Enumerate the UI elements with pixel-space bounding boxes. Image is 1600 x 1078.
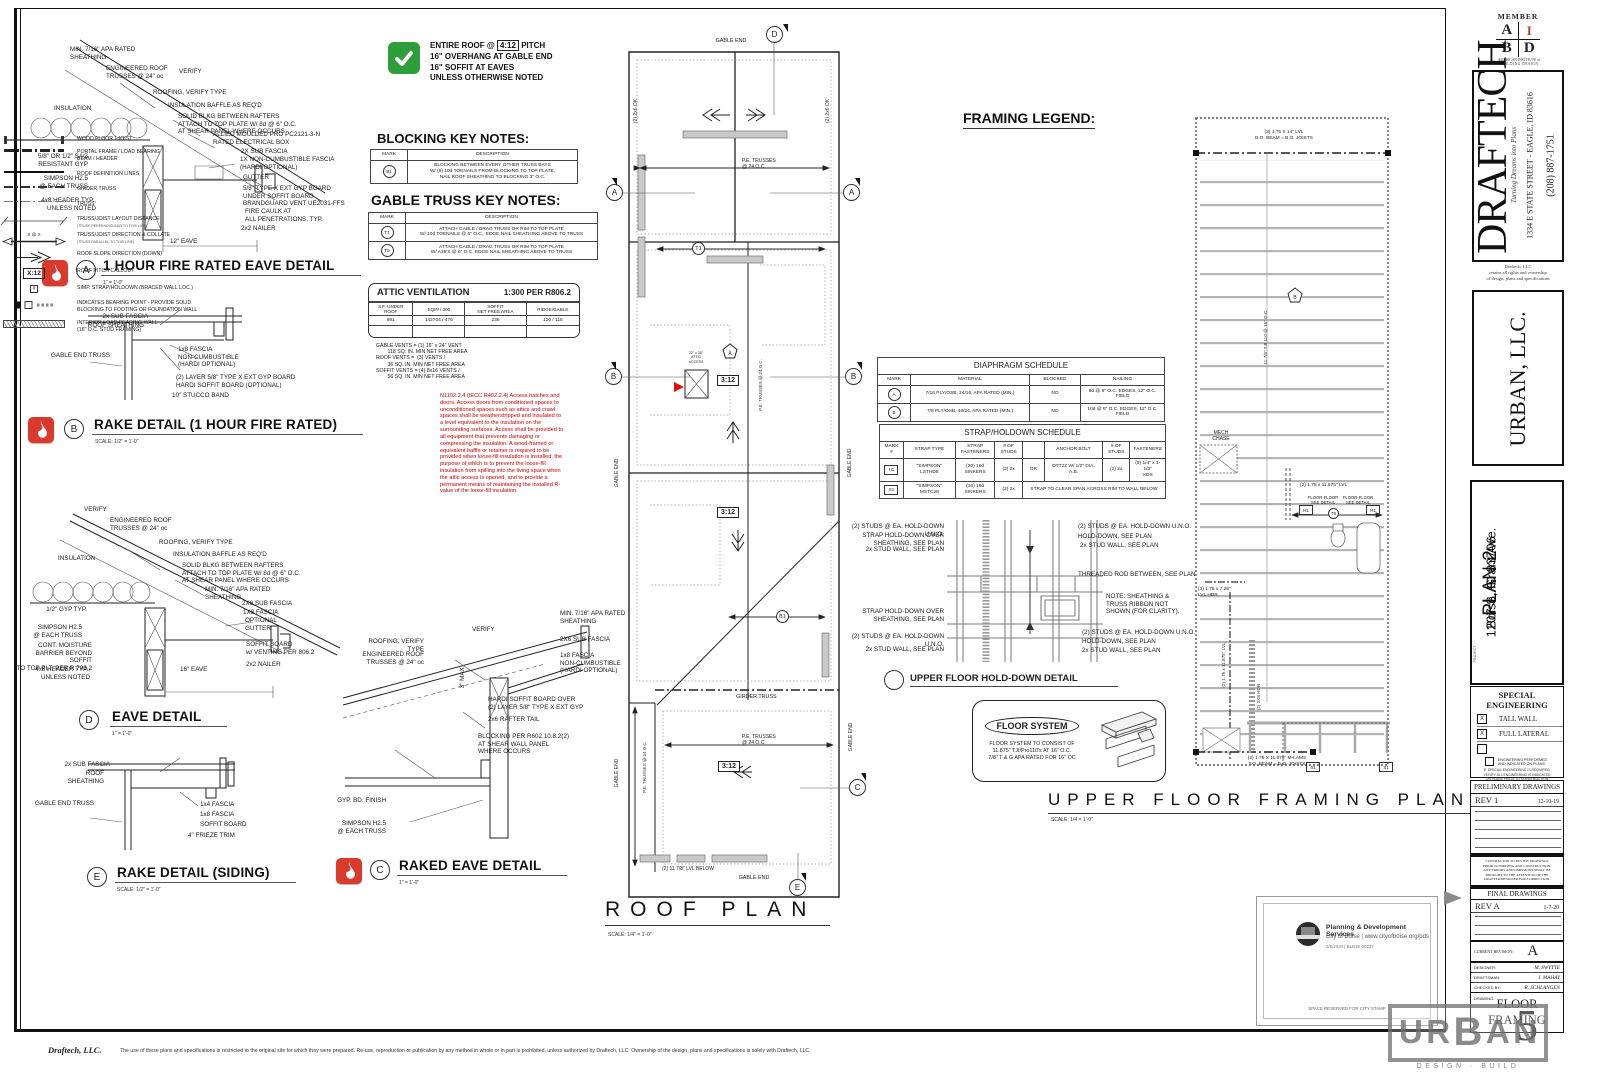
bearing-wall-symbol-icon — [0, 320, 68, 328]
legend-label: WOOD FLOOR I-JOIST — [77, 136, 132, 143]
legend-sublabel: (TRUSS PERPENDICULAR TO THIS LINE) — [77, 224, 147, 228]
table-title: DIAPHRAGM SCHEDULE — [878, 358, 1165, 375]
col-header: SOFFIT NET FREE AREA — [465, 303, 526, 316]
detail-d-label: SOFFIT BOARD w/ VENTING PER 806.2 — [246, 641, 314, 656]
cell: "SIMPSON" LSTHD8 — [903, 458, 955, 481]
roof-pitch-value: 4:12 — [497, 40, 519, 51]
gable-end-label: GABLE END — [614, 458, 620, 487]
contractor-note-box: CONTRACTOR TO REVIEW DRAWINGS PRIOR TO B… — [1470, 854, 1564, 888]
legend-label-text: TRUSS/JOIST LAYOUT DISTANCE — [77, 216, 160, 222]
section-flag-icon — [611, 362, 616, 370]
detail-d-label: ROOFING, VERIFY TYPE — [159, 539, 233, 547]
cell: DTT2Z W/ 1/2" DIA. A.B. — [1044, 458, 1102, 481]
diaphragm-mark: B — [888, 406, 901, 419]
cell: 236 — [465, 316, 526, 326]
legend-item: ROOF DEFINITION LINES — [0, 171, 139, 178]
legend-label: INDICATES BEARING POINT - PROVIDE SOLID … — [77, 300, 197, 313]
floor-floor-label: FLOOR-FLOOR SEE DETAIL — [1340, 495, 1376, 505]
stamp-line2: City of Boise | www.cityofboise.org/pds — [1326, 934, 1429, 940]
section-flag-icon — [612, 178, 617, 186]
section-flag-icon — [861, 773, 866, 781]
tall-wall-checkbox[interactable]: X — [1477, 714, 1487, 724]
gable-truss-key-notes-table: MARKDESCRIPTION T1ATTACH GABLE / DRAG TR… — [368, 212, 598, 260]
attic-access-label: 22" x 30" ATTIC ACCESS — [683, 351, 709, 364]
detail-b-title: RAKE DETAIL (1 HOUR FIRE RATED) — [92, 417, 363, 435]
detail-c-label: BLOCKING PER R602.10.8.2(2) AT SHEAR WAL… — [478, 733, 569, 756]
prelim-rev: REV 1 — [1475, 795, 1498, 805]
legend-label: TRUSS/JOIST DIRECTION & COLLATE(TRUSS PA… — [77, 232, 170, 245]
frame-bottom — [14, 1029, 1446, 1032]
detail-b-label: 10" STUCCO BAND — [172, 392, 229, 400]
legend-label: TRUSS/JOIST LAYOUT DISTANCE(TRUSS PERPEN… — [77, 216, 160, 229]
col-header: # OF STUDS — [1102, 442, 1130, 459]
footer-disclaimer: The use of these plans and specification… — [120, 1048, 800, 1054]
detail-a-label: 2x2 NAILER — [241, 225, 276, 233]
legend-label: PORTAL FRAME / LOAD BEARING BEAM / HEADE… — [77, 149, 160, 162]
detail-e-title: RAKE DETAIL (SIDING) — [115, 865, 296, 883]
final-drawings-box: FINAL DRAWINGS REV A 1-7-20 — [1470, 888, 1564, 941]
prelim-date: 12-10-19 — [1538, 799, 1559, 805]
cell: (8) 1/4" x 1-1/2" SDS — [1130, 458, 1166, 481]
legend-label: GIRDER TRUSS — [77, 186, 116, 193]
pitch-callout-symbol-icon: X:12 — [0, 268, 68, 279]
pe-trusses-label: P.E. TRUSSES @ 24 O.C. — [642, 741, 647, 793]
col-header: MARK — [371, 150, 408, 161]
engineering-performed-checkbox[interactable] — [1485, 757, 1494, 766]
roof-note-pre: ENTIRE ROOF @ — [430, 41, 495, 50]
hdr-2x8-label: (2) 2X8 HDR — [1256, 683, 1261, 710]
legend-item: ROOF SLOPE DIRECTION (DOWN) — [0, 251, 162, 264]
truss-key-t1: T1 — [692, 242, 705, 255]
detail-a-label: 12" EAVE — [170, 238, 197, 246]
legend-label-text: TRUSS/JOIST DIRECTION & COLLATE — [77, 232, 170, 238]
attic-access-pointer-icon — [674, 382, 684, 392]
legend-label: SIMP. STRAP/HOLDOWN (BRACED WALL LOC.) — [77, 285, 193, 292]
col-header: BLOCKED — [1030, 375, 1081, 386]
pe-trusses-label: P.E. TRUSSES @ 24 O.C. — [742, 734, 776, 746]
upper-plan-title: UPPER FLOOR FRAMING PLAN — [1048, 790, 1478, 814]
holddown-label: THREADED ROD BETWEEN, SEE PLAN — [1078, 571, 1196, 579]
detail-b-label: (2) LAYER 5/8" TYPE X EXT GYP BOARD HARD… — [176, 374, 295, 389]
blocking-notes-title: BLOCKING KEY NOTES: — [377, 131, 529, 146]
special-engineering-title: SPECIAL ENGINEERING — [1471, 690, 1563, 710]
holddown-detail-mark — [884, 670, 904, 690]
detail-d-label: OPTIONAL GUTTER — [245, 617, 277, 632]
attic-ventilation-table: ATTIC VENTILATION 1:300 PER R806.2 S.F. … — [368, 283, 580, 338]
urban-letter: B — [1454, 1008, 1483, 1056]
frame-top — [14, 8, 1446, 9]
detail-d-label: 2X6 SUB FASCIA — [242, 600, 292, 608]
strap-holdown-symbol-icon: # — [0, 285, 68, 293]
gable-end-label: GABLE END — [848, 722, 854, 751]
truss-key-t5: T5 — [1328, 508, 1339, 519]
slope-direction-symbol-icon — [0, 251, 68, 264]
key-mark: T1 — [381, 226, 394, 239]
detail-a-label: 2X SUB FASCIA — [241, 148, 288, 156]
cell: 991 — [369, 316, 413, 326]
final-title: FINAL DRAWINGS — [1471, 890, 1563, 900]
floor-system-body: FLOOR SYSTEM TO CONSIST OF 11.875" TJI/P… — [979, 741, 1085, 762]
detail-d-label: 4x8 HEADER TYP., UNLESS NOTED — [22, 666, 90, 681]
detail-c-scale: 1" = 1'-0" — [399, 880, 419, 886]
col-header: NAILING — [1081, 375, 1165, 386]
detail-c-label: SIMPSON H2.5 @ EACH TRUSS — [330, 820, 386, 835]
stamp-line3: 3/5/2020 | BLD20-00237 — [1326, 944, 1374, 949]
truss-symbol-icon — [0, 201, 68, 202]
floor-system-box: FLOOR SYSTEM FLOOR SYSTEM TO CONSIST OF … — [972, 700, 1166, 782]
rights-note: Draftech, LLC retains all rights and own… — [1472, 264, 1564, 282]
section-marker-b: B — [845, 368, 862, 385]
legend-item: INDICATES BEARING POINT - PROVIDE SOLID … — [0, 300, 197, 313]
urban-letter: N — [1513, 1008, 1537, 1056]
preliminary-title: PRELIMINARY DRAWINGS — [1471, 783, 1563, 794]
final-rev: REV A — [1475, 901, 1500, 911]
col-header: MATERIAL — [911, 375, 1030, 386]
holddown-label: 2x STUD WALL, SEE PLAN — [1080, 542, 1159, 550]
checked-by-value: R. SCHLANGEN — [1525, 985, 1560, 991]
detail-e-mark: E — [87, 867, 107, 887]
full-lateral-label: FULL LATERAL — [1499, 730, 1549, 738]
ok-label: (2) 2x6 OK — [825, 98, 831, 123]
aibd-letter-i: I — [1519, 22, 1541, 39]
detail-d-scale: 1" = 1'-0" — [112, 731, 132, 737]
draftech-address: 1334 E STATE STREET - EAGLE, ID 83616 — [1526, 86, 1535, 246]
detail-d-label: 1X8 FASCIA — [243, 609, 278, 617]
gable-end-label: GABLE END — [847, 448, 853, 477]
col-header: STRAP TYPE — [903, 442, 955, 459]
boise-logo-icon — [1296, 922, 1320, 946]
full-lateral-checkbox[interactable]: X — [1477, 729, 1487, 739]
strap-s1-mark: S1 — [1306, 762, 1320, 772]
roof-plan-scale: SCALE: 1/4" = 1'-0" — [608, 932, 652, 938]
section-marker-d: D — [766, 26, 783, 43]
detail-d-mark: D — [79, 710, 99, 730]
draftech-phone: (208) 887-1751 — [1546, 118, 1557, 214]
col-header: DESCRIPTION — [408, 150, 578, 161]
gable-end-label: GABLE END — [726, 875, 782, 881]
portal-frame-symbol-icon — [0, 149, 68, 152]
section-marker-e: E — [789, 879, 806, 896]
holddown-label: HOLD-DOWN, SEE PLAN — [1082, 638, 1156, 646]
detail-b-label: GABLE END TRUSS — [40, 352, 110, 360]
section-marker-a: A — [606, 184, 623, 201]
detail-c-label: HARDI SOFFIT BOARD OVER (2) LAYER 5/8" T… — [488, 696, 583, 711]
gable-notes-title: GABLE TRUSS KEY NOTES: — [371, 192, 561, 208]
ijoist-symbol-icon — [0, 136, 68, 144]
detail-d-label: 2x2 NAILER — [246, 661, 281, 669]
framing-legend-title: FRAMING LEGEND: — [963, 110, 1095, 129]
gable-end-label: GABLE END — [614, 758, 620, 787]
attic-vent-title: ATTIC VENTILATION — [377, 287, 470, 298]
cell: NO — [1030, 403, 1081, 421]
col-header: SQIN / 300 — [413, 303, 465, 316]
legend-item: X @ X TRUSS/JOIST DIRECTION & COLLATE(TR… — [0, 232, 170, 246]
aibd-letter-a: A — [1496, 22, 1519, 39]
layout-distance-symbol-icon — [0, 216, 68, 226]
col-header: DESCRIPTION — [406, 213, 598, 224]
table-title: STRAP/HOLDOWN SCHEDULE — [880, 425, 1166, 442]
detail-a-label: 5/8" TYPE X EXT GYP BOARD UNDER SOFFIT B… — [243, 185, 345, 208]
legend-item: GIRDER TRUSS — [0, 186, 116, 193]
collate-symbol-icon: X @ X — [0, 232, 68, 246]
detail-b-mark: B — [64, 419, 84, 439]
girder-truss-symbol-icon — [0, 186, 68, 188]
draftsman-label: DRAFTSMAN: — [1474, 975, 1500, 980]
section-flag-icon — [857, 362, 862, 370]
detail-a-label: INSULATION — [54, 105, 91, 113]
col-header — [1022, 442, 1044, 459]
girder-truss-label: GIRDER TRUSS — [736, 694, 777, 700]
legend-item: PORTAL FRAME / LOAD BEARING BEAM / HEADE… — [0, 149, 160, 162]
aibd-letter-d: D — [1519, 40, 1541, 57]
fire-rating-icon — [336, 858, 362, 884]
holddown-detail-title: UPPER FLOOR HOLD-DOWN DETAIL — [910, 673, 1118, 687]
strap-s1-mark: S1 — [1379, 762, 1393, 772]
col-header: FASTENERS — [1130, 442, 1166, 459]
diaphragm-mark: A — [888, 388, 901, 401]
drawing-label: DRAWING: — [1474, 996, 1494, 1001]
floor-floor-label: FLOOR-FLOOR SEE DETAIL — [1305, 495, 1341, 505]
detail-b-label: 1x8 FASCIA NON-CUMBUSTIBLE (HARDI OPTION… — [178, 346, 239, 369]
lvl-mid-label: (2) 1.75 x 11.875" LVL — [1300, 483, 1347, 489]
cell: (16) 16d SINKERS — [955, 481, 995, 498]
rotated-plan-labels: GABLE END GABLE END GABLE END GABLE END … — [614, 98, 854, 793]
col-header: MARK — [369, 213, 406, 224]
detail-c-label: 2x6 RAFTER TAIL — [488, 716, 540, 724]
current-revision-label: CURRENT REVISION: — [1474, 949, 1513, 954]
holddown-label: (2) STUDS @ EA. HOLD-DOWN U.N.O. — [1078, 523, 1191, 531]
urban-logo: U R B A N — [1388, 1004, 1548, 1062]
detail-e-label: ROOF SHEATHING — [52, 770, 104, 785]
detail-c-title: RAKED EAVE DETAIL — [397, 858, 567, 876]
cell: 10d @ 6" O.C. EDGES, 12" O.C. FIELD — [1081, 403, 1165, 421]
legend-item: INTERIOR LOAD BEARING WALL (16" O.C. STU… — [0, 320, 158, 333]
holdown-h1-mark: H1 — [1299, 505, 1313, 515]
fire-rating-icon — [28, 417, 54, 443]
cell: (2) 2x — [995, 481, 1022, 498]
detail-d-label: VERIFY — [84, 506, 107, 514]
pitch-symbol-text: X:12 — [23, 268, 45, 279]
footer-firm: Draftech, LLC. — [48, 1045, 102, 1055]
lvl-below-label: (2) 11 7/8" LVL BELOW — [662, 866, 714, 872]
cell: STRAP TO CLEAR SPAN ACROSS RIM TO WALL B… — [1022, 481, 1165, 498]
section-flag-icon — [783, 24, 788, 32]
urban-letter: R — [1426, 1008, 1450, 1056]
detail-d-label: ENGINEERED ROOF TRUSSES @ 24" oc — [110, 517, 172, 532]
detail-a-label: MIN. 7/16" APA RATED SHEATHING — [70, 46, 135, 61]
legend-item: TRUSS — [0, 201, 95, 208]
member-label: MEMBER — [1472, 12, 1564, 21]
detail-c-label: ENGINEERED ROOF TRUSSES @ 24" oc — [352, 651, 424, 666]
holdown-h1-mark: H1 — [1366, 505, 1380, 515]
legend-item: X:12 ROOF PITCH CALLOUT — [0, 268, 134, 279]
blocking-key-notes-table: MARKDESCRIPTION B1BLOCKING BETWEEN EVERY… — [370, 149, 578, 184]
detail-a-label: ALLIED MOULDED PRO PC2121-3-N RATED ELEC… — [213, 131, 320, 146]
roof-pitch-note: ENTIRE ROOF @ 4:12 PITCH 16" OVERHANG AT… — [430, 41, 552, 84]
detail-d-label: 1/2" GYP TYP. — [27, 606, 87, 614]
roof-plan-drawing: A GABLE END GABLE END GABLE END GABLE EN… — [600, 25, 862, 905]
roof-note-line4: UNLESS OTHERWISE NOTED — [430, 73, 552, 84]
detail-e-label: 1x4 FASCIA — [200, 801, 234, 809]
section-marker-a: A — [843, 184, 860, 201]
pentagon-letter: A — [728, 351, 732, 357]
tji-joist-label: 11 7/8" TJI 110 @ 16" O.C. — [1263, 310, 1268, 365]
holddown-label: STRAP HOLD-DOWN OVER SHEATHING, SEE PLAN — [861, 532, 944, 547]
legend-label: INTERIOR LOAD BEARING WALL (16" O.C. STU… — [77, 320, 158, 333]
col-header: STRAP FASTENERS — [955, 442, 995, 459]
detail-d-label: 16" EAVE — [180, 666, 207, 674]
detail-a-label: ENGINEERED ROOF TRUSSES @ 24" oc — [106, 65, 168, 80]
strap-holdown-schedule-table: STRAP/HOLDOWN SCHEDULE MARK # STRAP TYPE… — [879, 424, 1166, 499]
upper-plan-scale: SCALE: 1/4 = 1'-0" — [1051, 817, 1093, 823]
cell: 8d @ 6" O.C. EDGES, 12" O.C. FIELD — [1081, 385, 1165, 403]
roof-note-line2: 16" OVERHANG AT GABLE END — [430, 52, 552, 63]
col-header: MARK — [878, 375, 911, 386]
key-desc: ATTACH GABLE / DRAG TRUSS OR RIM TO TOP … — [406, 241, 598, 259]
legend-label: ROOF DEFINITION LINES — [77, 171, 139, 178]
frame-right — [1445, 8, 1446, 1032]
cell: 7/16 PLY/OSB, 24/16, APA RATED (MIN.) — [911, 385, 1030, 403]
legend-label: ROOF SLOPE DIRECTION (DOWN) — [77, 251, 162, 258]
designer-value: M. SWYTTE — [1534, 965, 1560, 971]
roof-pitch-callout: 3:12 — [718, 761, 740, 772]
designer-label: DESIGNER: — [1474, 965, 1496, 970]
legend-item: TRUSS/JOIST LAYOUT DISTANCE(TRUSS PERPEN… — [0, 216, 160, 229]
insulation-access-code-note: N1102.2.4 (IECC R402.2.4) Access hatches… — [440, 393, 564, 495]
cell: "SIMPSON" MSTC28 — [903, 481, 955, 498]
urban-logo-subtitle: DESIGN · BUILD — [1402, 1063, 1534, 1070]
detail-c-label: 3" MAX — [459, 667, 467, 688]
check-mark: X — [1480, 716, 1484, 722]
detail-a-label: ROOFING, VERIFY TYPE — [153, 89, 227, 97]
client-name: URBAN, LLC. — [1505, 309, 1531, 449]
detail-d-label: SOLID BLKG BETWEEN RAFTERS ATTACH TO TOP… — [182, 562, 301, 585]
holddown-label: (2) STUDS @ EA. HOLD-DOWN U.N.O. — [1082, 629, 1195, 637]
cell: OR — [1022, 458, 1044, 481]
strap-mark: H1 — [884, 465, 898, 475]
roof-note-line3: 16" SOFFIT AT EAVES — [430, 63, 552, 74]
key-mark: T5 — [381, 244, 394, 257]
blocking-key-b1: B1 — [776, 610, 789, 623]
section-flag-icon — [855, 178, 860, 186]
roof-pitch-callout: 3:12 — [717, 375, 739, 386]
detail-a-label: 1X NON-CUMBUSTIBLE FASCIA (HARDI OPTIONA… — [240, 156, 334, 171]
floor-system-isometric-icon — [1088, 705, 1160, 777]
col-header: RIDGE/GABLE — [526, 303, 579, 316]
detail-e-label: GABLE END TRUSS — [34, 800, 94, 808]
hash-symbol-text: # — [30, 285, 39, 293]
detail-d-label: SIMPSON H2.5 @ EACH TRUSS — [22, 624, 82, 639]
diaphragm-schedule-table: DIAPHRAGM SCHEDULE MARK MATERIAL BLOCKED… — [877, 357, 1165, 422]
holddown-label: 2x STUD WALL, SEE PLAN — [865, 546, 944, 554]
draftsman-value: J. MAHAY — [1538, 975, 1560, 981]
detail-d-label: INSULATION — [58, 555, 95, 563]
legend-label: ROOF PITCH CALLOUT — [77, 268, 134, 275]
holddown-note: NOTE: SHEATHING & TRUSS RIBBON NOT SHOWN… — [1106, 593, 1179, 616]
detail-e-label: 1x8 FASCIA — [200, 811, 234, 819]
project-label: PROJECT — [1473, 634, 1477, 674]
detail-c-mark: C — [370, 860, 390, 880]
upper-floor-framing-plan-drawing: B 11 7/8" TJI 110 @ 16" O.C. (2) 1.75 x … — [1190, 112, 1402, 802]
section-marker-b: B — [605, 368, 622, 385]
col-header: MARK # — [880, 442, 904, 459]
roof-line-symbol-icon — [0, 171, 68, 173]
pe-trusses-label: P.E. TRUSSES @ 24 O.C. — [758, 359, 763, 411]
col-header: # OF STUDS — [995, 442, 1022, 459]
col-header: S.F. UNDER ROOF — [369, 303, 413, 316]
engineering-performed-label: ENGINEERING PERFORMED AND INDICATED ON P… — [1498, 758, 1547, 767]
rev-pointer-icon — [1444, 891, 1462, 905]
key-desc: BLOCKING BETWEEN EVERY OTHER TRUSS BAYS … — [408, 160, 578, 183]
pe-trusses-label: P.E. TRUSSES @ 24 O.C. — [742, 158, 776, 170]
section-marker-c: C — [849, 779, 866, 796]
cell: (20) 16d SINKERS — [955, 458, 995, 481]
detail-a-label: FIRE CAULK AT ALL PENETRATIONS, TYP. — [245, 208, 323, 223]
checked-by-label: CHECKED BY: — [1474, 985, 1501, 990]
lvl-left-label: (2) 1.75 x 11.875" LVL — [1221, 642, 1226, 688]
detail-d-title: EAVE DETAIL — [110, 709, 227, 727]
lvl-hdr-label: (3) 1.75 x 7.25" LVL HDR — [1198, 587, 1244, 599]
detail-e-label: 2x SUB FASCIA — [58, 761, 110, 769]
lvl-beam-label: (3) 1.75 X 14" LVL B.O. BEAM = B.O. JOIS… — [1238, 130, 1330, 142]
cell: 7/8 PLY/OSB, 48/24, APA RATED (MIN.) — [911, 403, 1030, 421]
attic-vent-ratio: 1:300 PER R806.2 — [504, 288, 571, 297]
cell: 120 / 118 — [526, 316, 579, 326]
detail-b-scale: SCALE: 1/2" = 1'-0" — [95, 439, 139, 445]
holddown-label: 2x STUD WALL, SEE PLAN — [865, 646, 944, 654]
detail-e-label: SOFFIT BOARD — [200, 821, 246, 829]
holddown-label: HOLD-DOWN, SEE PLAN — [1078, 533, 1152, 541]
col-header: ANCHOR BOLT — [1044, 442, 1102, 459]
attic-vent-notes: GABLE VENTS = (1) 16" x 24" VENT 118 SQ.… — [376, 343, 467, 380]
detail-a-label: INSULATION BAFFLE AS REQ'D — [168, 102, 262, 110]
legend-label: TRUSS — [77, 201, 95, 208]
cell: (2) 2x — [995, 458, 1022, 481]
section-flag-icon — [801, 873, 806, 881]
roof-plan-title: ROOF PLAN — [605, 898, 830, 926]
urban-letter: U — [1399, 1008, 1423, 1056]
legend-item: # SIMP. STRAP/HOLDOWN (BRACED WALL LOC.) — [0, 285, 193, 293]
mech-chase-label: MECH CHASE — [1204, 430, 1238, 442]
check-mark: X — [1480, 731, 1484, 737]
key-desc: ATTACH GABLE / DRAG TRUSS OR RIM TO TOP … — [406, 223, 598, 241]
blank-checkbox[interactable] — [1477, 744, 1487, 754]
key-mark: B1 — [383, 165, 396, 178]
special-engineering-box: SPECIAL ENGINEERING X TALL WALL X FULL L… — [1470, 686, 1564, 778]
final-date: 1-7-20 — [1544, 905, 1559, 911]
roof-pitch-callout: 3:12 — [717, 507, 739, 518]
detail-c-label: VERIFY — [472, 626, 495, 634]
detail-d-label: MIN. 7/16" APA RATED SHEATHING — [205, 586, 270, 601]
holddown-label: STRAP HOLD-DOWN OVER SHEATHING, SEE PLAN — [861, 608, 944, 623]
detail-a-label: GUTTER — [243, 174, 269, 182]
cell: NO — [1030, 385, 1081, 403]
detail-d-label: INSULATION BAFFLE AS REQ'D — [173, 551, 267, 559]
bearing-point-symbol-icon — [0, 300, 68, 310]
roof-note-post: PITCH — [521, 41, 545, 50]
cell: 142704 / 476 — [413, 316, 465, 326]
ok-label: (2) 2x6 OK — [633, 98, 639, 123]
gable-end-label: GABLE END — [703, 38, 759, 44]
legend-item: WOOD FLOOR I-JOIST — [0, 136, 132, 144]
detail-e-label: 4" FRIEZE TRIM — [188, 832, 235, 840]
project-address2: Boise, ID 83706 — [1484, 528, 1499, 638]
cell: (2) 2x — [1102, 458, 1130, 481]
floor-system-title: FLOOR SYSTEM — [985, 717, 1079, 735]
roof-note-check-icon — [388, 42, 420, 74]
contractor-note: CONTRACTOR TO REVIEW DRAWINGS PRIOR TO B… — [1471, 859, 1563, 882]
preliminary-drawings-box: PRELIMINARY DRAWINGS REV 1 12-10-19 — [1470, 780, 1564, 854]
